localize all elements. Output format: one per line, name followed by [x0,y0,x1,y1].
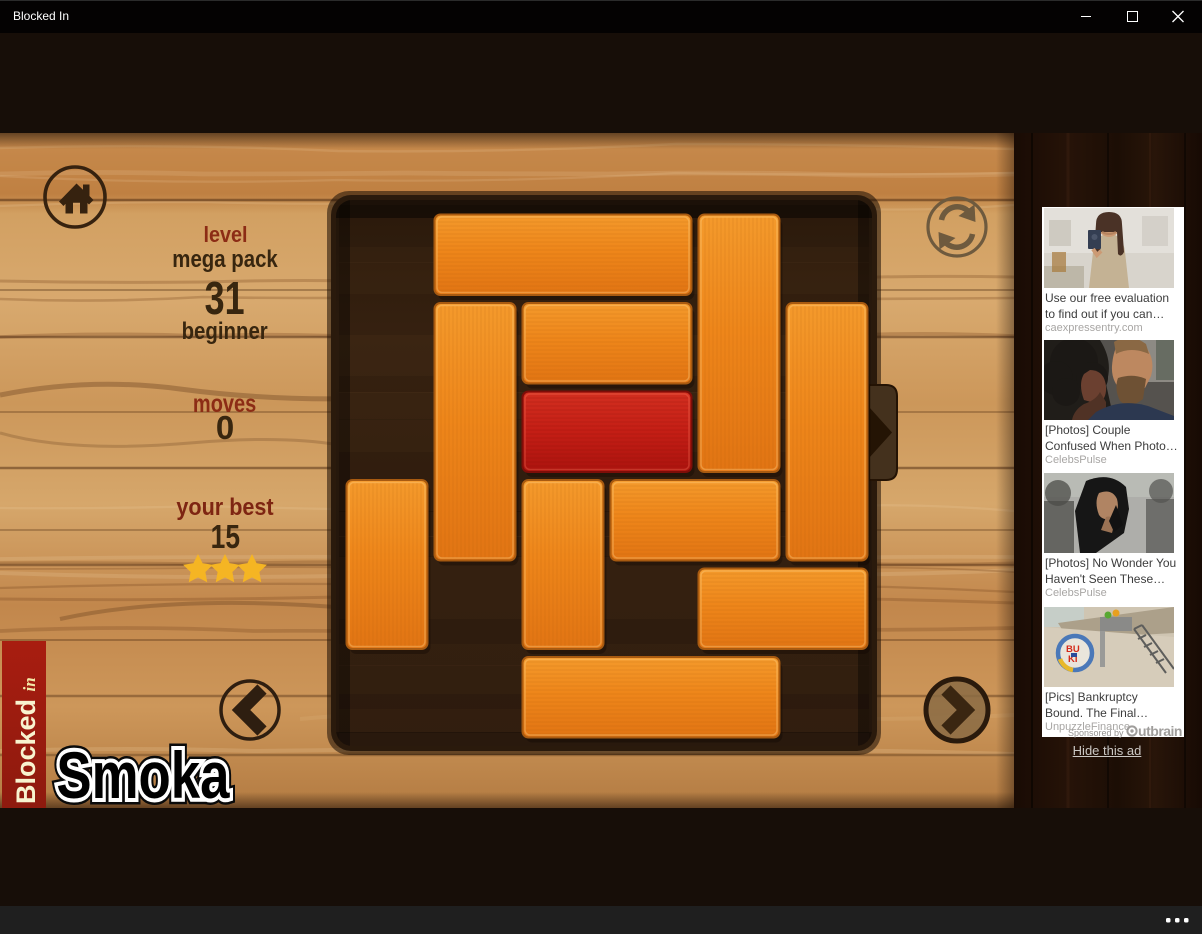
svg-text:Smoka: Smoka [56,738,230,812]
